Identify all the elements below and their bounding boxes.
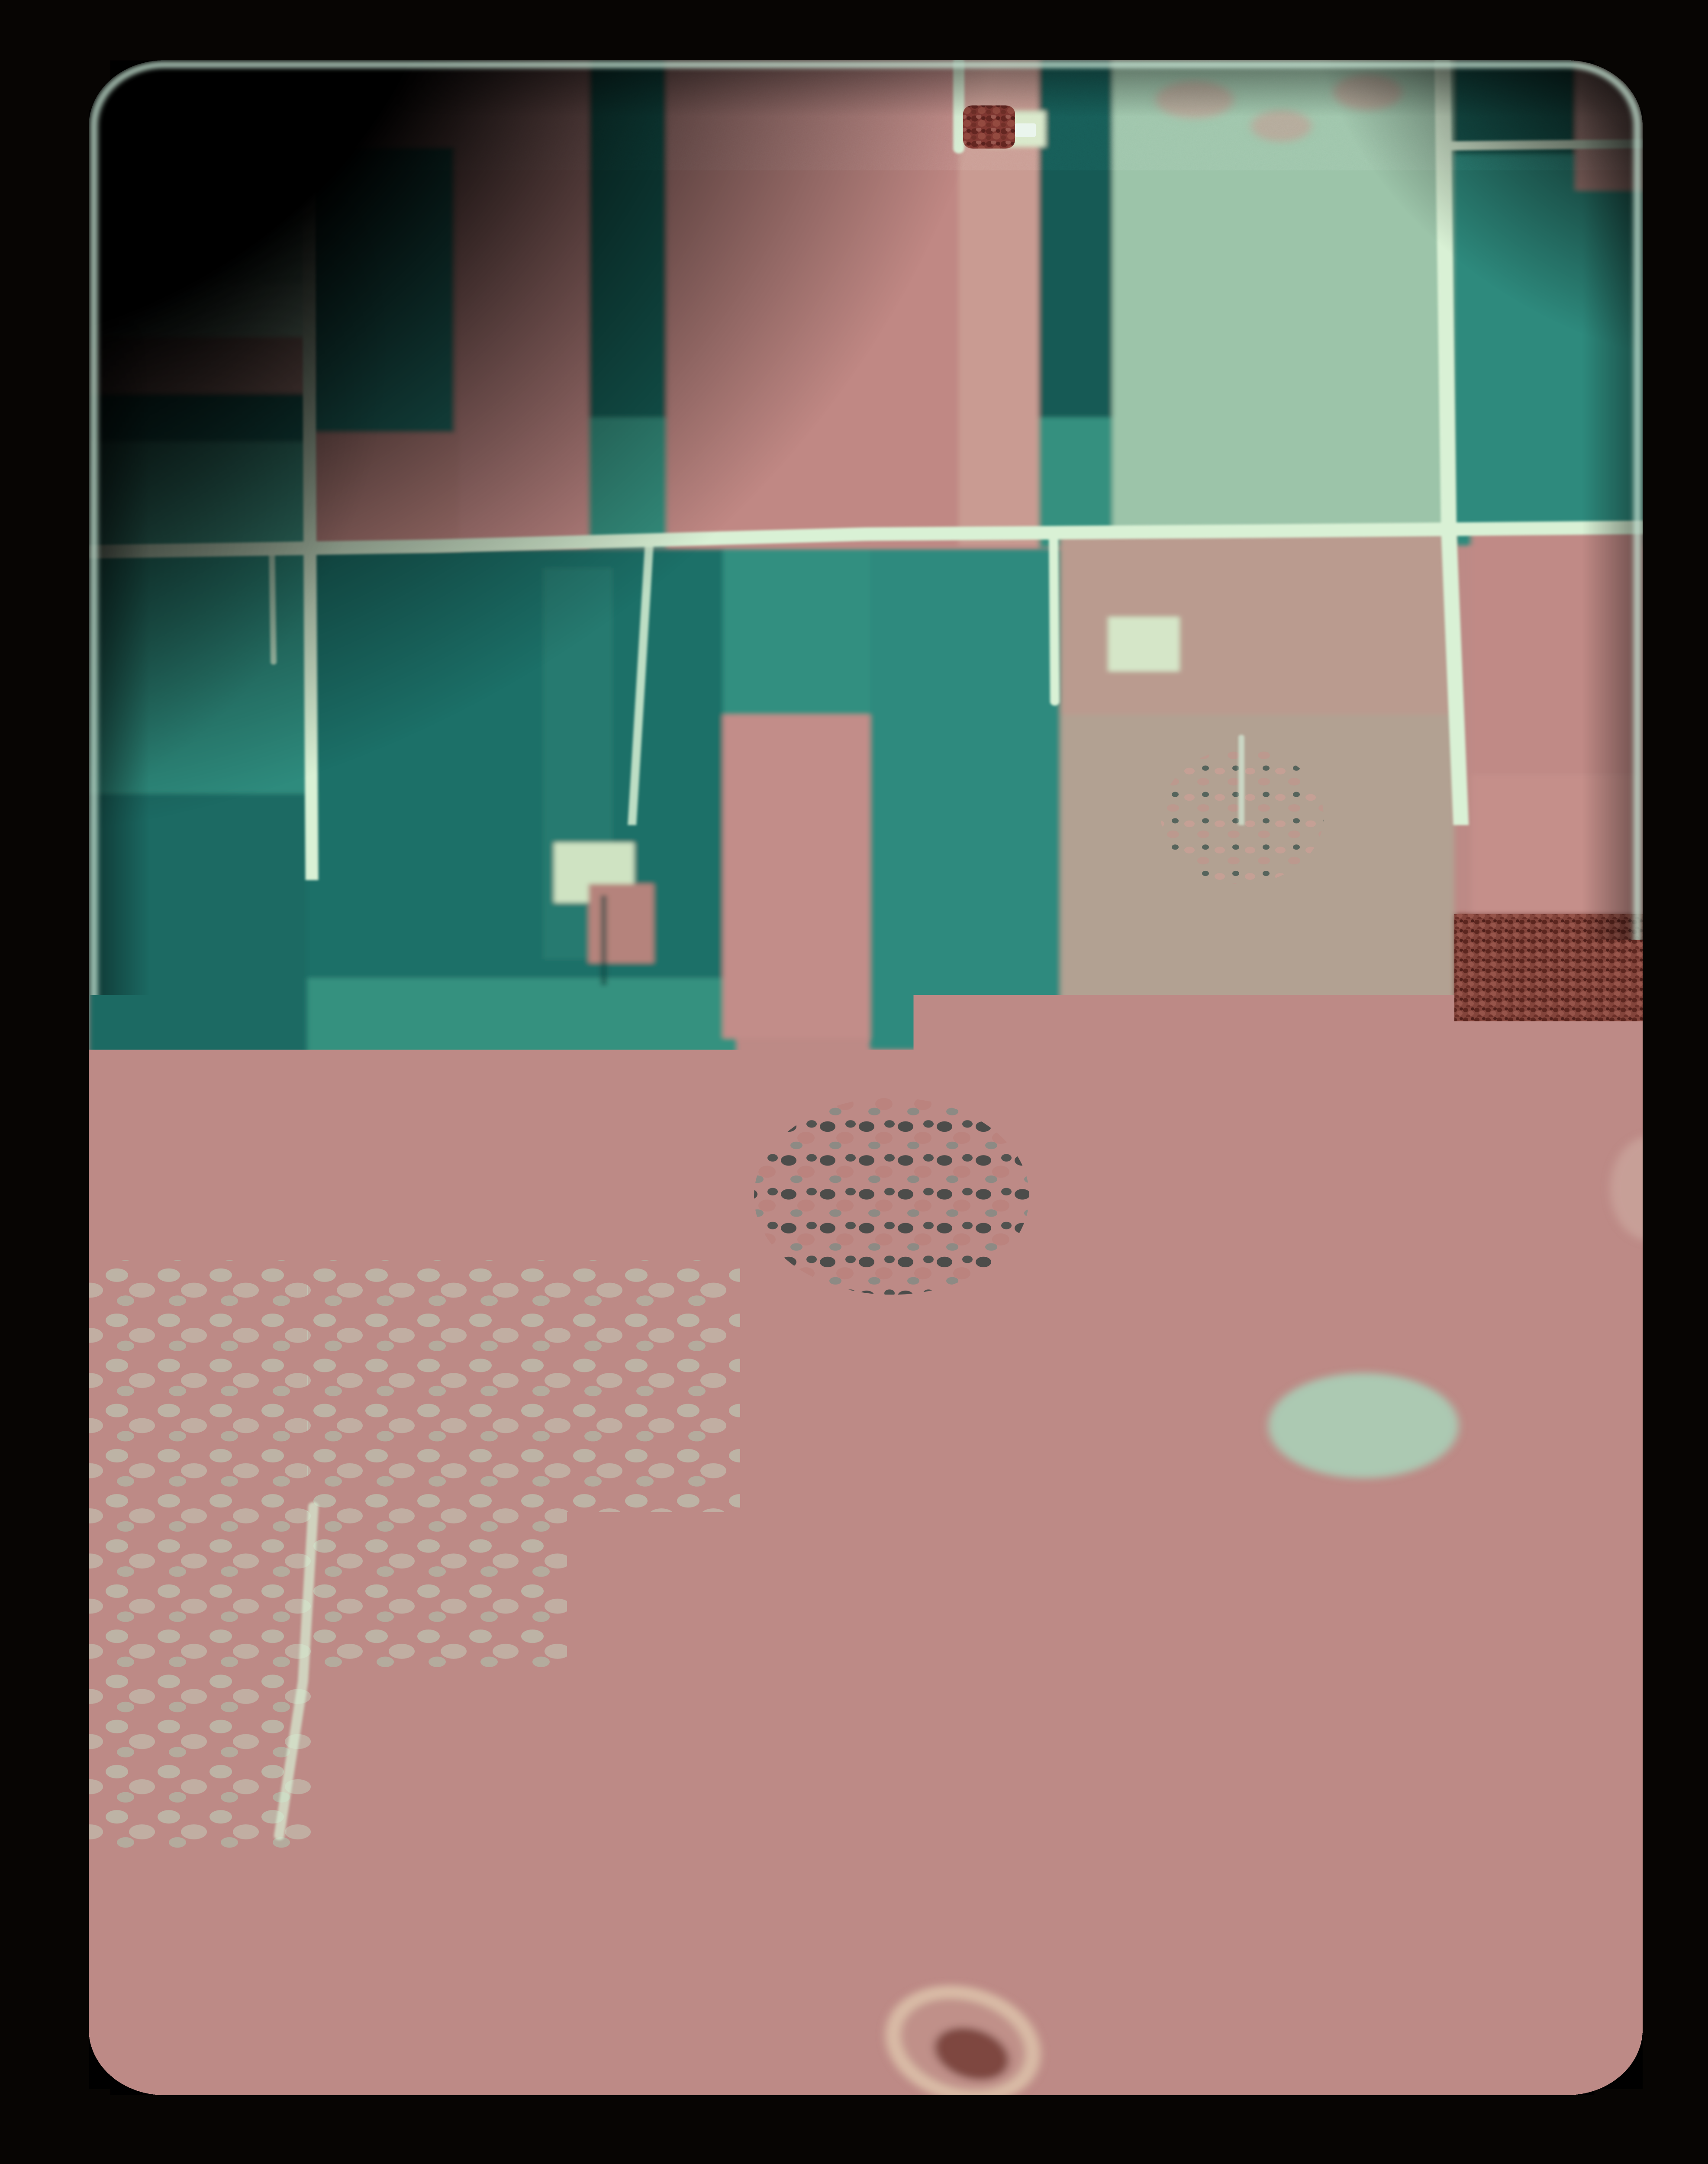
vignette-layer (89, 60, 1643, 2095)
corner-vignette (89, 60, 1643, 2095)
aerial-photo-slide (0, 0, 1708, 2164)
edge-bottom (89, 2039, 1643, 2095)
photo-area (15, 60, 1692, 2125)
edge-top (89, 60, 1643, 116)
infrared-aerial-photograph (0, 0, 1708, 2164)
